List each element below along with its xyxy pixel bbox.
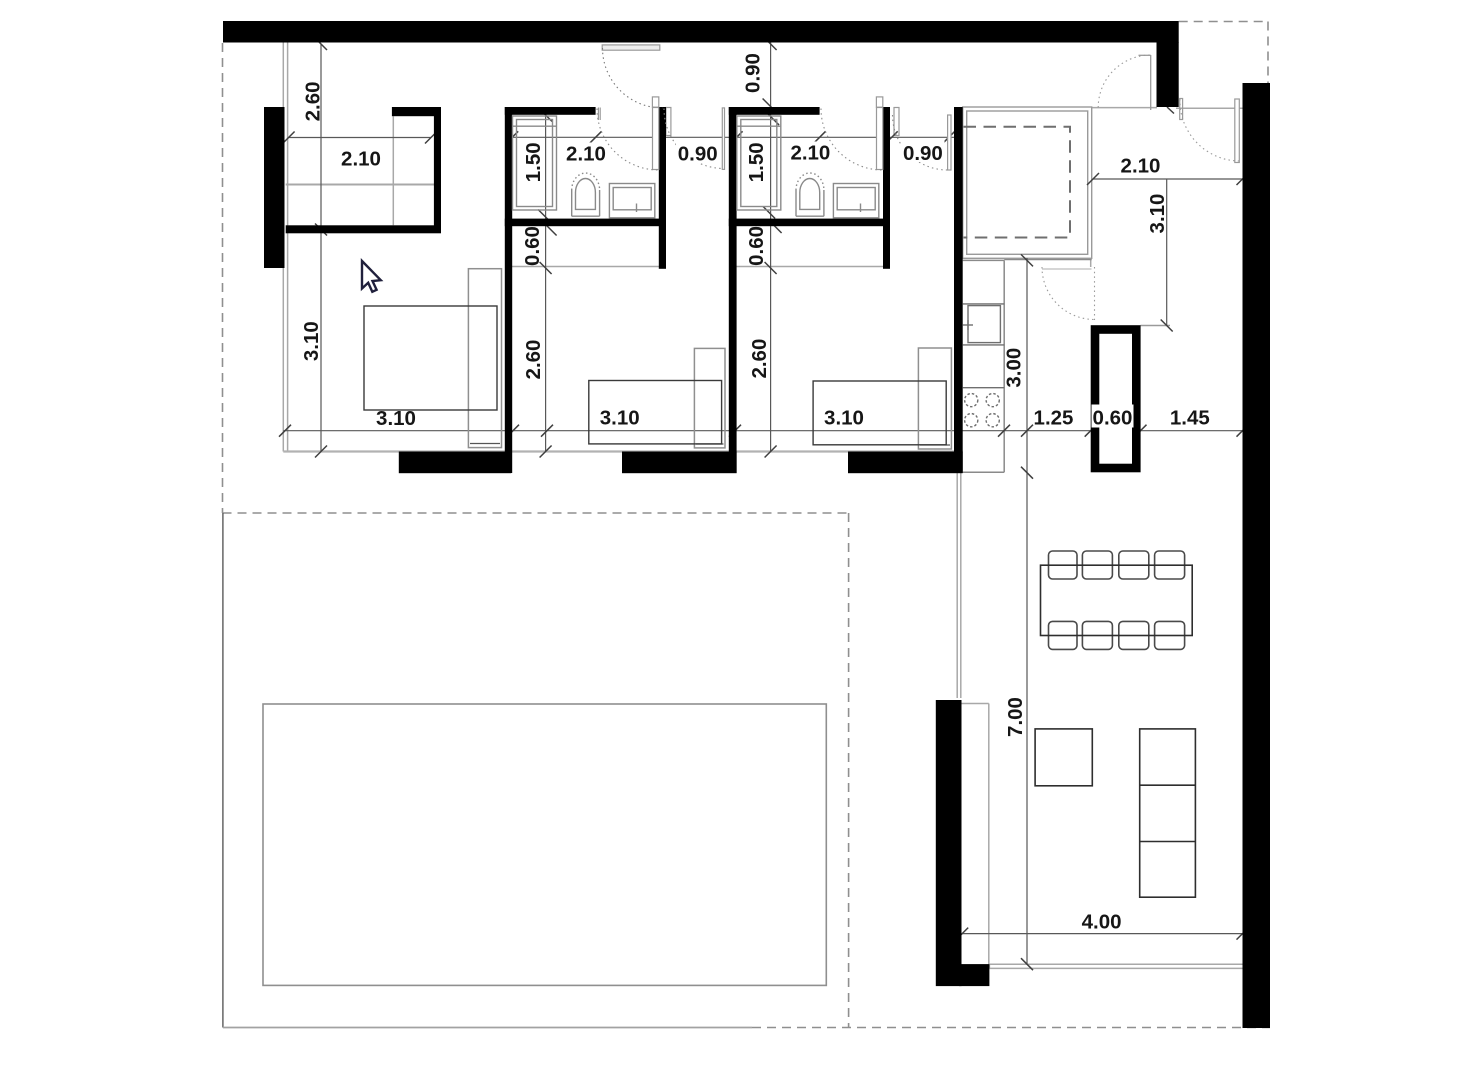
svg-text:2.60: 2.60 bbox=[748, 339, 771, 379]
svg-text:1.25: 1.25 bbox=[1034, 406, 1074, 429]
svg-text:2.60: 2.60 bbox=[522, 340, 545, 380]
svg-text:3.10: 3.10 bbox=[300, 321, 323, 361]
svg-text:3.10: 3.10 bbox=[824, 407, 864, 430]
svg-text:2.10: 2.10 bbox=[1121, 155, 1161, 178]
svg-text:2.10: 2.10 bbox=[341, 147, 381, 170]
svg-text:3.10: 3.10 bbox=[376, 407, 416, 430]
svg-text:0.90: 0.90 bbox=[742, 53, 765, 93]
svg-text:4.00: 4.00 bbox=[1082, 911, 1122, 934]
svg-text:2.60: 2.60 bbox=[302, 81, 325, 121]
svg-text:0.60: 0.60 bbox=[1093, 406, 1133, 429]
svg-text:0.90: 0.90 bbox=[678, 142, 718, 165]
svg-text:3.10: 3.10 bbox=[600, 407, 640, 430]
svg-text:7.00: 7.00 bbox=[1004, 697, 1027, 737]
svg-text:3.10: 3.10 bbox=[1146, 194, 1169, 234]
svg-text:0.60: 0.60 bbox=[745, 226, 768, 266]
svg-text:3.00: 3.00 bbox=[1003, 348, 1026, 388]
svg-text:1.45: 1.45 bbox=[1170, 406, 1210, 429]
svg-text:2.10: 2.10 bbox=[790, 141, 830, 164]
svg-text:2.10: 2.10 bbox=[566, 142, 606, 165]
svg-text:1.50: 1.50 bbox=[745, 142, 768, 182]
svg-text:1.50: 1.50 bbox=[522, 142, 545, 182]
svg-text:0.90: 0.90 bbox=[903, 142, 943, 165]
svg-text:0.60: 0.60 bbox=[521, 226, 544, 266]
